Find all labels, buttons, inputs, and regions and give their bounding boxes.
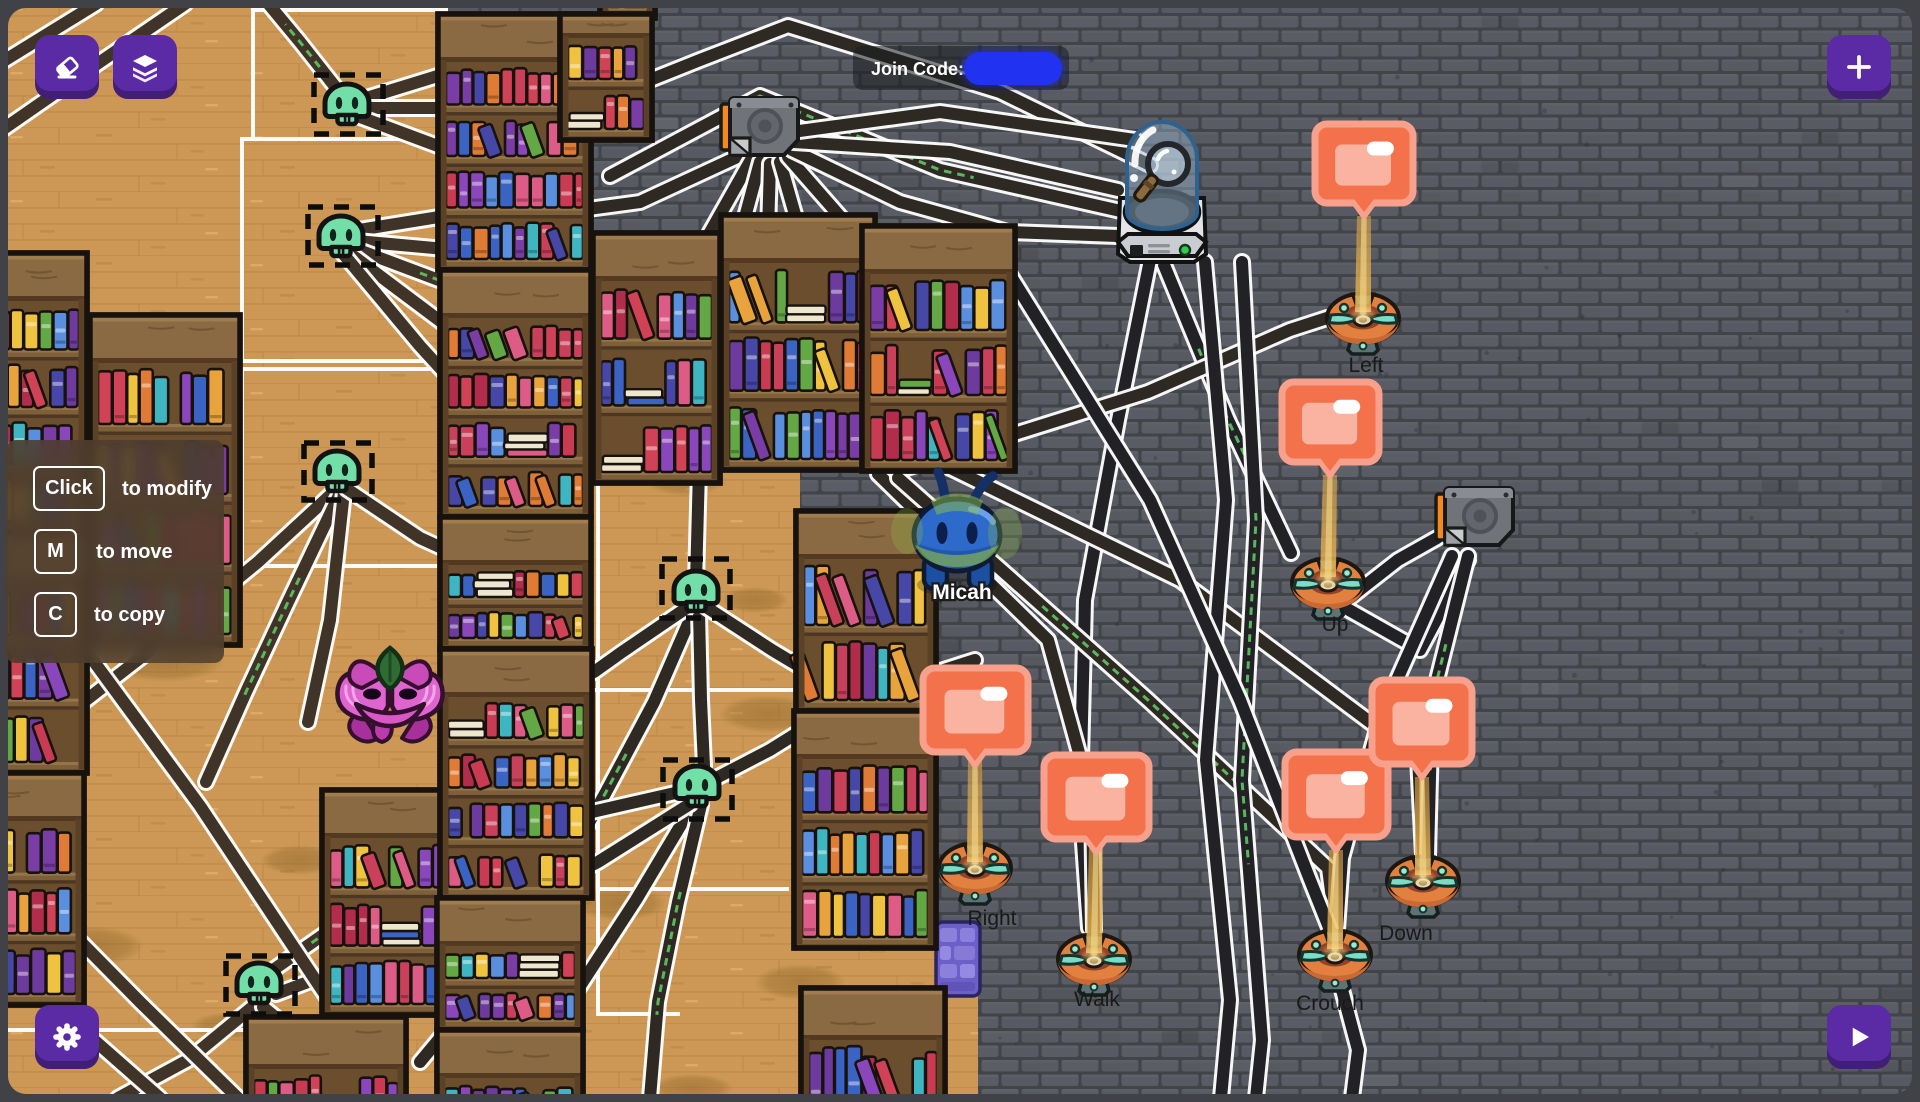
svg-text:Down: Down bbox=[1379, 922, 1433, 945]
svg-text:Walk: Walk bbox=[1074, 988, 1120, 1011]
svg-text:Right: Right bbox=[967, 907, 1016, 930]
svg-text:Up: Up bbox=[1322, 613, 1349, 636]
svg-text:Left: Left bbox=[1348, 354, 1383, 377]
svg-text:Crouch: Crouch bbox=[1296, 992, 1364, 1015]
svg-text:Micah: Micah bbox=[932, 581, 992, 604]
